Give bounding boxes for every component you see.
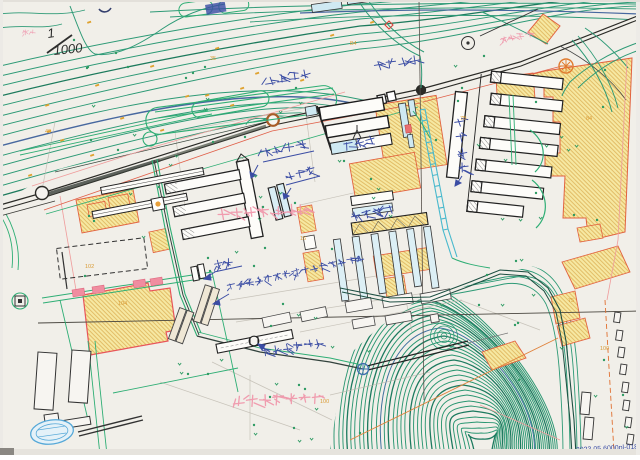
svg-text:75: 75: [568, 298, 574, 304]
svg-text:102: 102: [85, 264, 94, 270]
svg-text:B4: B4: [350, 41, 357, 47]
svg-text:84: 84: [586, 116, 592, 122]
svg-text:35: 35: [210, 56, 216, 62]
svg-text:7B: 7B: [460, 116, 467, 122]
svg-text:16: 16: [300, 236, 306, 242]
svg-text:104: 104: [118, 301, 127, 307]
svg-text:1000: 1000: [53, 40, 84, 58]
svg-text:100: 100: [600, 346, 609, 352]
svg-text:100: 100: [320, 399, 329, 405]
